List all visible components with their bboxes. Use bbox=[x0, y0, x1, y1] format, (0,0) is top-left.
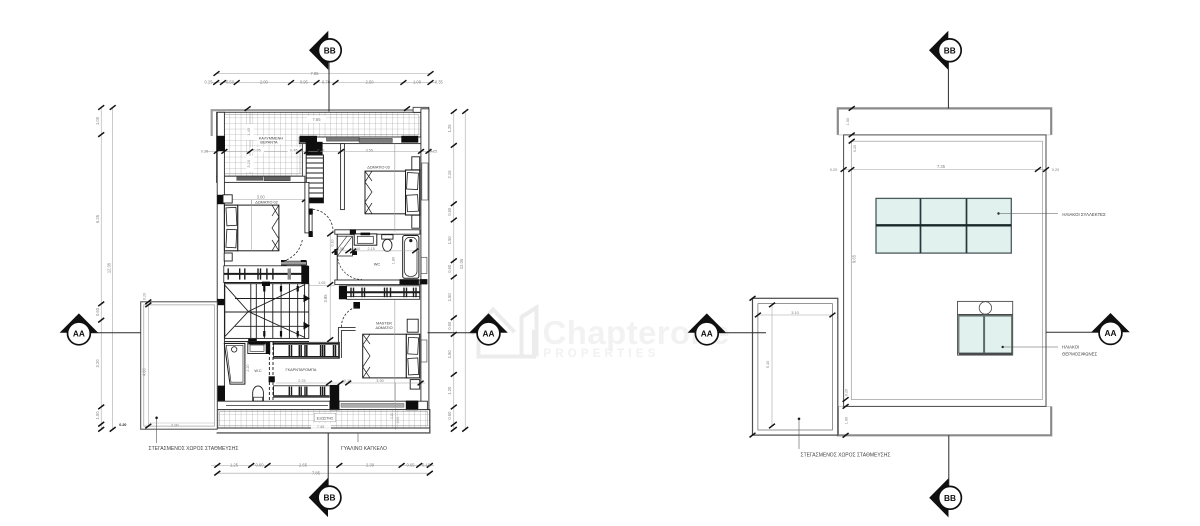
svg-text:7.85: 7.85 bbox=[311, 71, 320, 76]
svg-text:2.50: 2.50 bbox=[366, 80, 375, 85]
svg-text:0.20: 0.20 bbox=[143, 293, 147, 300]
svg-text:0.20: 0.20 bbox=[853, 145, 857, 152]
svg-text:1.25: 1.25 bbox=[230, 463, 239, 468]
svg-text:ΗΛΙΑΚΟΙ: ΗΛΙΑΚΟΙ bbox=[1062, 344, 1079, 349]
svg-text:1.00: 1.00 bbox=[845, 417, 849, 424]
svg-text:2.20: 2.20 bbox=[246, 364, 250, 371]
svg-text:1.00: 1.00 bbox=[95, 116, 100, 125]
svg-text:BB: BB bbox=[944, 45, 956, 55]
svg-text:0.10: 0.10 bbox=[422, 463, 431, 468]
svg-text:0.60: 0.60 bbox=[447, 207, 452, 216]
svg-text:PROPERTIES: PROPERTIES bbox=[543, 348, 659, 360]
svg-text:0.20: 0.20 bbox=[845, 389, 849, 396]
svg-text:7.35: 7.35 bbox=[937, 164, 946, 169]
svg-text:ΔΩΜΑΤΙΟ 02: ΔΩΜΑΤΙΟ 02 bbox=[255, 201, 277, 205]
svg-text:2.00: 2.00 bbox=[260, 80, 269, 85]
svg-text:6.25: 6.25 bbox=[95, 214, 100, 223]
svg-text:1.25: 1.25 bbox=[447, 124, 452, 133]
svg-text:AA: AA bbox=[73, 328, 85, 338]
svg-text:ΔΩΜΑΤΙΟ 03: ΔΩΜΑΤΙΟ 03 bbox=[367, 166, 389, 170]
svg-text:AA: AA bbox=[701, 328, 713, 338]
svg-text:0.20: 0.20 bbox=[1052, 168, 1059, 172]
svg-text:ΔΩΜΑΤΙΟ: ΔΩΜΑΤΙΟ bbox=[375, 326, 392, 330]
svg-text:0.95: 0.95 bbox=[300, 80, 309, 85]
svg-text:2.25: 2.25 bbox=[298, 379, 305, 383]
svg-text:0.60: 0.60 bbox=[447, 321, 452, 330]
svg-text:0.25: 0.25 bbox=[205, 80, 214, 85]
svg-text:7.85: 7.85 bbox=[312, 471, 321, 476]
svg-text:0.65: 0.65 bbox=[407, 463, 416, 468]
svg-text:1.00: 1.00 bbox=[95, 411, 100, 420]
svg-text:0.60: 0.60 bbox=[447, 411, 452, 420]
svg-text:BB: BB bbox=[324, 493, 336, 503]
svg-text:0.50: 0.50 bbox=[226, 80, 235, 85]
svg-text:12.05: 12.05 bbox=[106, 262, 111, 273]
svg-text:ΣΤΕΓΑΣΜΕΝΟΣ ΧΩΡΟΣ ΣΤΑΘΜΕΥΣΗΣ: ΣΤΕΓΑΣΜΕΝΟΣ ΧΩΡΟΣ ΣΤΑΘΜΕΥΣΗΣ bbox=[149, 446, 239, 452]
svg-text:0.60: 0.60 bbox=[256, 463, 265, 468]
svg-text:3.20: 3.20 bbox=[246, 159, 251, 167]
svg-text:BB: BB bbox=[944, 493, 956, 503]
svg-text:1.50: 1.50 bbox=[447, 293, 452, 302]
svg-text:WC: WC bbox=[374, 262, 381, 267]
svg-text:2.15: 2.15 bbox=[368, 247, 375, 251]
svg-text:1.80: 1.80 bbox=[392, 257, 396, 264]
svg-text:ΓΚΑΡΝΤΑΡΟΜΠΑ: ΓΚΑΡΝΤΑΡΟΜΠΑ bbox=[286, 368, 317, 372]
svg-text:MASTER: MASTER bbox=[376, 321, 392, 325]
svg-text:0.20: 0.20 bbox=[830, 168, 837, 172]
svg-text:1.50: 1.50 bbox=[447, 236, 452, 245]
svg-text:5.10: 5.10 bbox=[765, 360, 770, 368]
svg-text:2.65: 2.65 bbox=[299, 463, 308, 468]
svg-text:4.60: 4.60 bbox=[142, 368, 147, 377]
svg-text:3.95: 3.95 bbox=[323, 294, 328, 303]
svg-text:1.20: 1.20 bbox=[447, 386, 452, 395]
svg-text:1.45: 1.45 bbox=[246, 128, 251, 136]
svg-text:ΕΞΩΣΤΗΣ: ΕΞΩΣΤΗΣ bbox=[317, 416, 334, 420]
svg-text:3.10: 3.10 bbox=[791, 310, 799, 315]
svg-text:0.85: 0.85 bbox=[253, 149, 260, 153]
svg-text:9.65: 9.65 bbox=[852, 254, 857, 263]
svg-text:0.25: 0.25 bbox=[201, 150, 208, 154]
svg-text:0.20: 0.20 bbox=[119, 423, 126, 427]
svg-text:1.05: 1.05 bbox=[318, 281, 325, 285]
svg-text:3.00: 3.00 bbox=[257, 194, 266, 199]
svg-text:ΒΕΡΑΝΤΑ: ΒΕΡΑΝΤΑ bbox=[260, 141, 278, 145]
svg-text:0.45: 0.45 bbox=[290, 149, 297, 153]
svg-text:0.10: 0.10 bbox=[330, 240, 334, 247]
svg-text:2.15: 2.15 bbox=[447, 170, 452, 179]
svg-text:3.90: 3.90 bbox=[376, 379, 383, 383]
svg-text:0.60: 0.60 bbox=[447, 264, 452, 273]
svg-text:1.00: 1.00 bbox=[846, 118, 850, 125]
svg-text:7.45: 7.45 bbox=[317, 425, 324, 429]
svg-text:1.50: 1.50 bbox=[447, 350, 452, 359]
svg-text:BB: BB bbox=[324, 45, 336, 55]
svg-text:ΓΥΑΛΙΝΟ ΚΑΓΚΕΛΟ: ΓΥΑΛΙΝΟ ΚΑΓΚΕΛΟ bbox=[341, 446, 387, 452]
svg-text:3.20: 3.20 bbox=[95, 359, 100, 368]
svg-text:AA: AA bbox=[483, 328, 495, 338]
svg-text:AA: AA bbox=[1105, 328, 1117, 338]
svg-text:ΗΛΙΑΚΟΙ ΣΥΛΛΕΚΤΕΣ: ΗΛΙΑΚΟΙ ΣΥΛΛΕΚΤΕΣ bbox=[1062, 212, 1106, 217]
svg-text:ΘΕΡΜΟΣΙΦΩΝΕΣ: ΘΕΡΜΟΣΙΦΩΝΕΣ bbox=[1062, 351, 1097, 356]
svg-text:1.00: 1.00 bbox=[413, 80, 422, 85]
svg-text:ΣΤΕΓΑΣΜΕΝΟΣ ΧΩΡΟΣ ΣΤΑΘΜΕΥΣΗΣ: ΣΤΕΓΑΣΜΕΝΟΣ ΧΩΡΟΣ ΣΤΑΘΜΕΥΣΗΣ bbox=[801, 452, 891, 458]
svg-text:7.65: 7.65 bbox=[313, 117, 322, 122]
svg-text:0.35: 0.35 bbox=[435, 80, 444, 85]
svg-text:3.55: 3.55 bbox=[366, 149, 373, 153]
svg-text:2.30: 2.30 bbox=[366, 463, 375, 468]
svg-text:W.C: W.C bbox=[254, 369, 261, 373]
svg-text:0.60: 0.60 bbox=[95, 307, 100, 316]
svg-text:12.05: 12.05 bbox=[459, 258, 464, 269]
